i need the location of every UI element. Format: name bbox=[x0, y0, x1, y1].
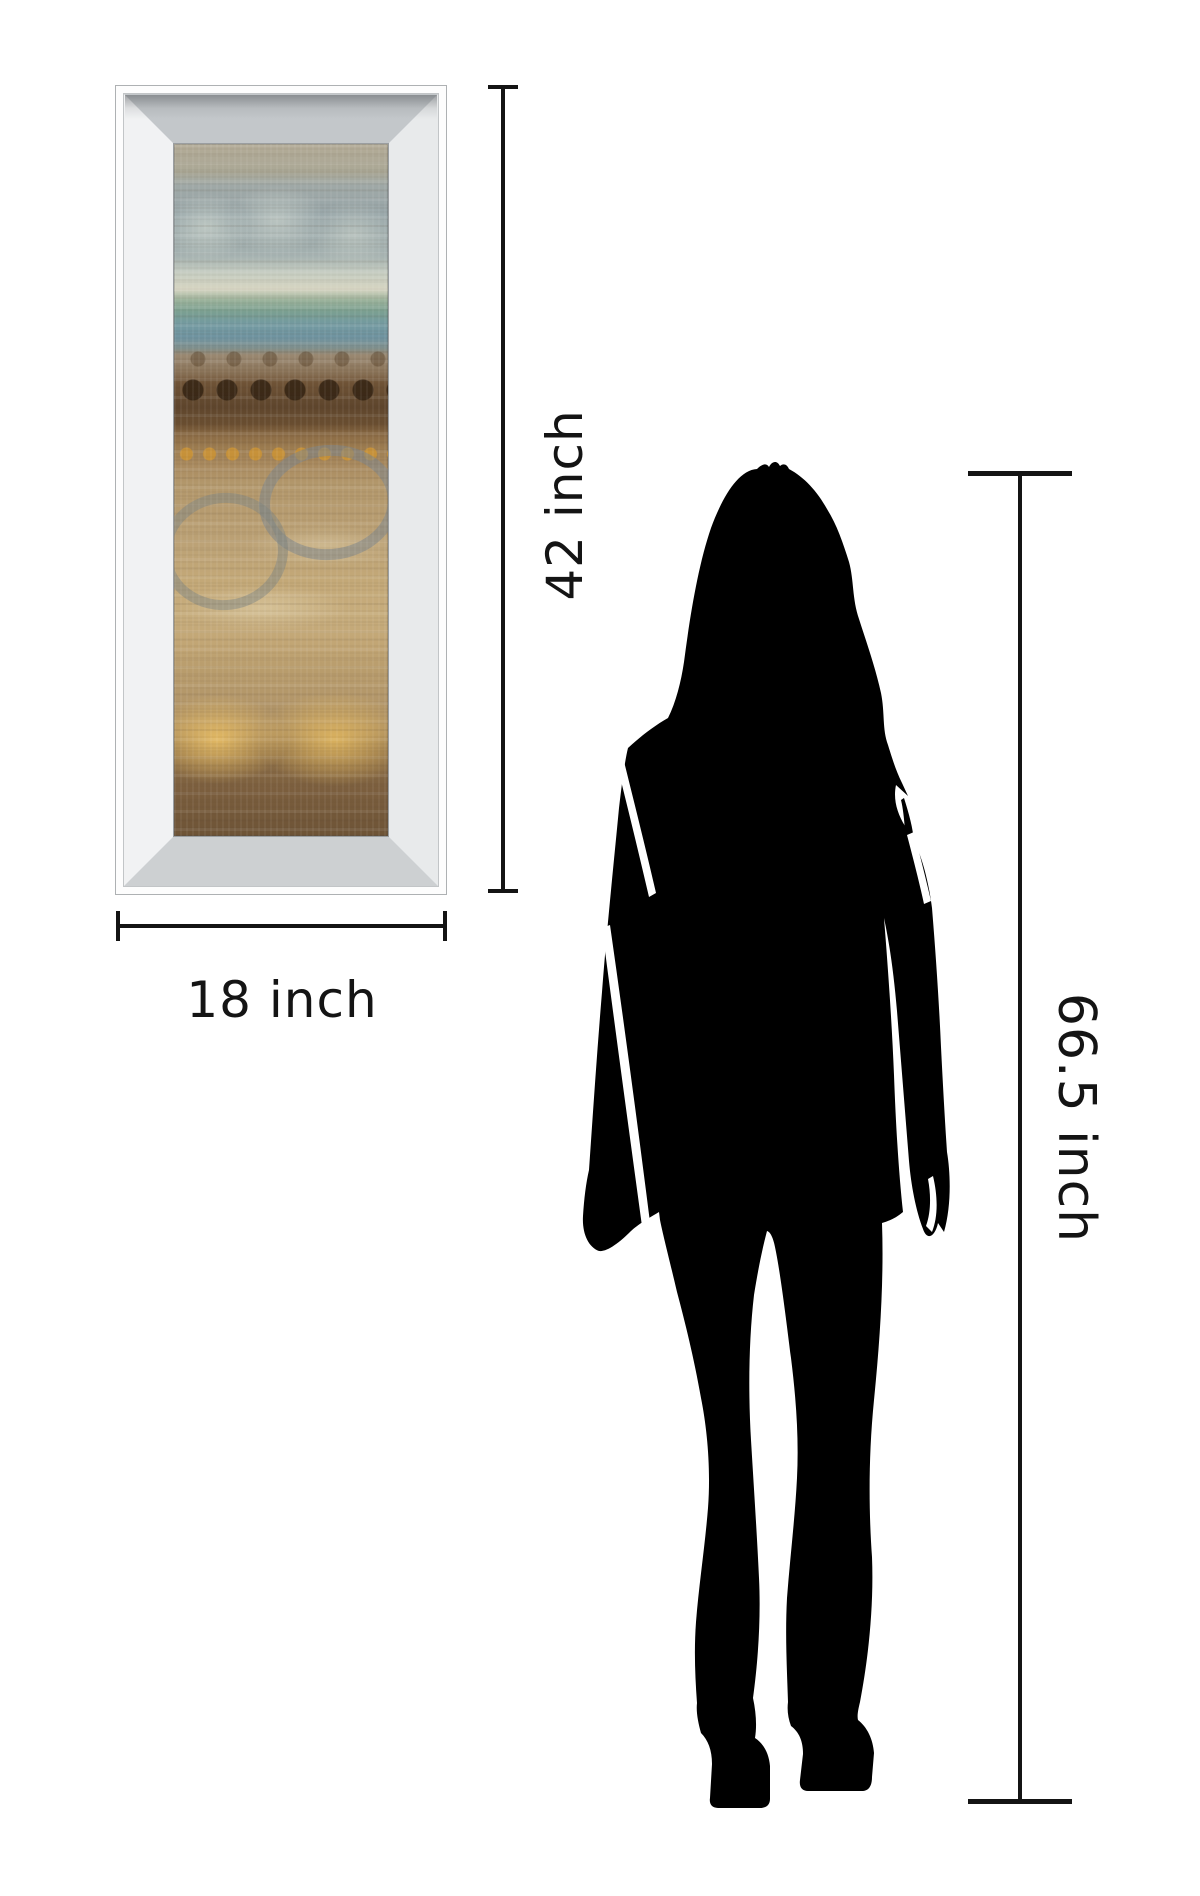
person-height-label: 66.5 inch bbox=[1046, 993, 1106, 1243]
person-height-dimension-line bbox=[1018, 473, 1022, 1801]
artwork-gold-dot-row bbox=[174, 438, 388, 469]
woman-silhouette-icon bbox=[455, 460, 965, 1815]
artwork-faint-dot-row bbox=[174, 341, 388, 372]
framed-art-print bbox=[115, 85, 447, 895]
frame-width-right-tick bbox=[443, 911, 447, 941]
artwork-dark-dot-row bbox=[174, 372, 388, 410]
frame-height-top-tick bbox=[488, 85, 518, 89]
frame-width-dimension-line bbox=[118, 924, 447, 928]
frame-top-reflection bbox=[125, 95, 437, 119]
artwork-circle-outline-right bbox=[254, 439, 388, 566]
person-height-bottom-tick bbox=[968, 1799, 1072, 1804]
frame-width-label: 18 inch bbox=[186, 971, 377, 1029]
abstract-artwork bbox=[174, 144, 388, 836]
frame-width-left-tick bbox=[116, 911, 120, 941]
artwork-circle-outline-left bbox=[174, 486, 295, 617]
person-height-top-tick bbox=[968, 471, 1072, 476]
size-comparison-diagram: 42 inch 18 inch 66.5 inch bbox=[0, 0, 1200, 1896]
